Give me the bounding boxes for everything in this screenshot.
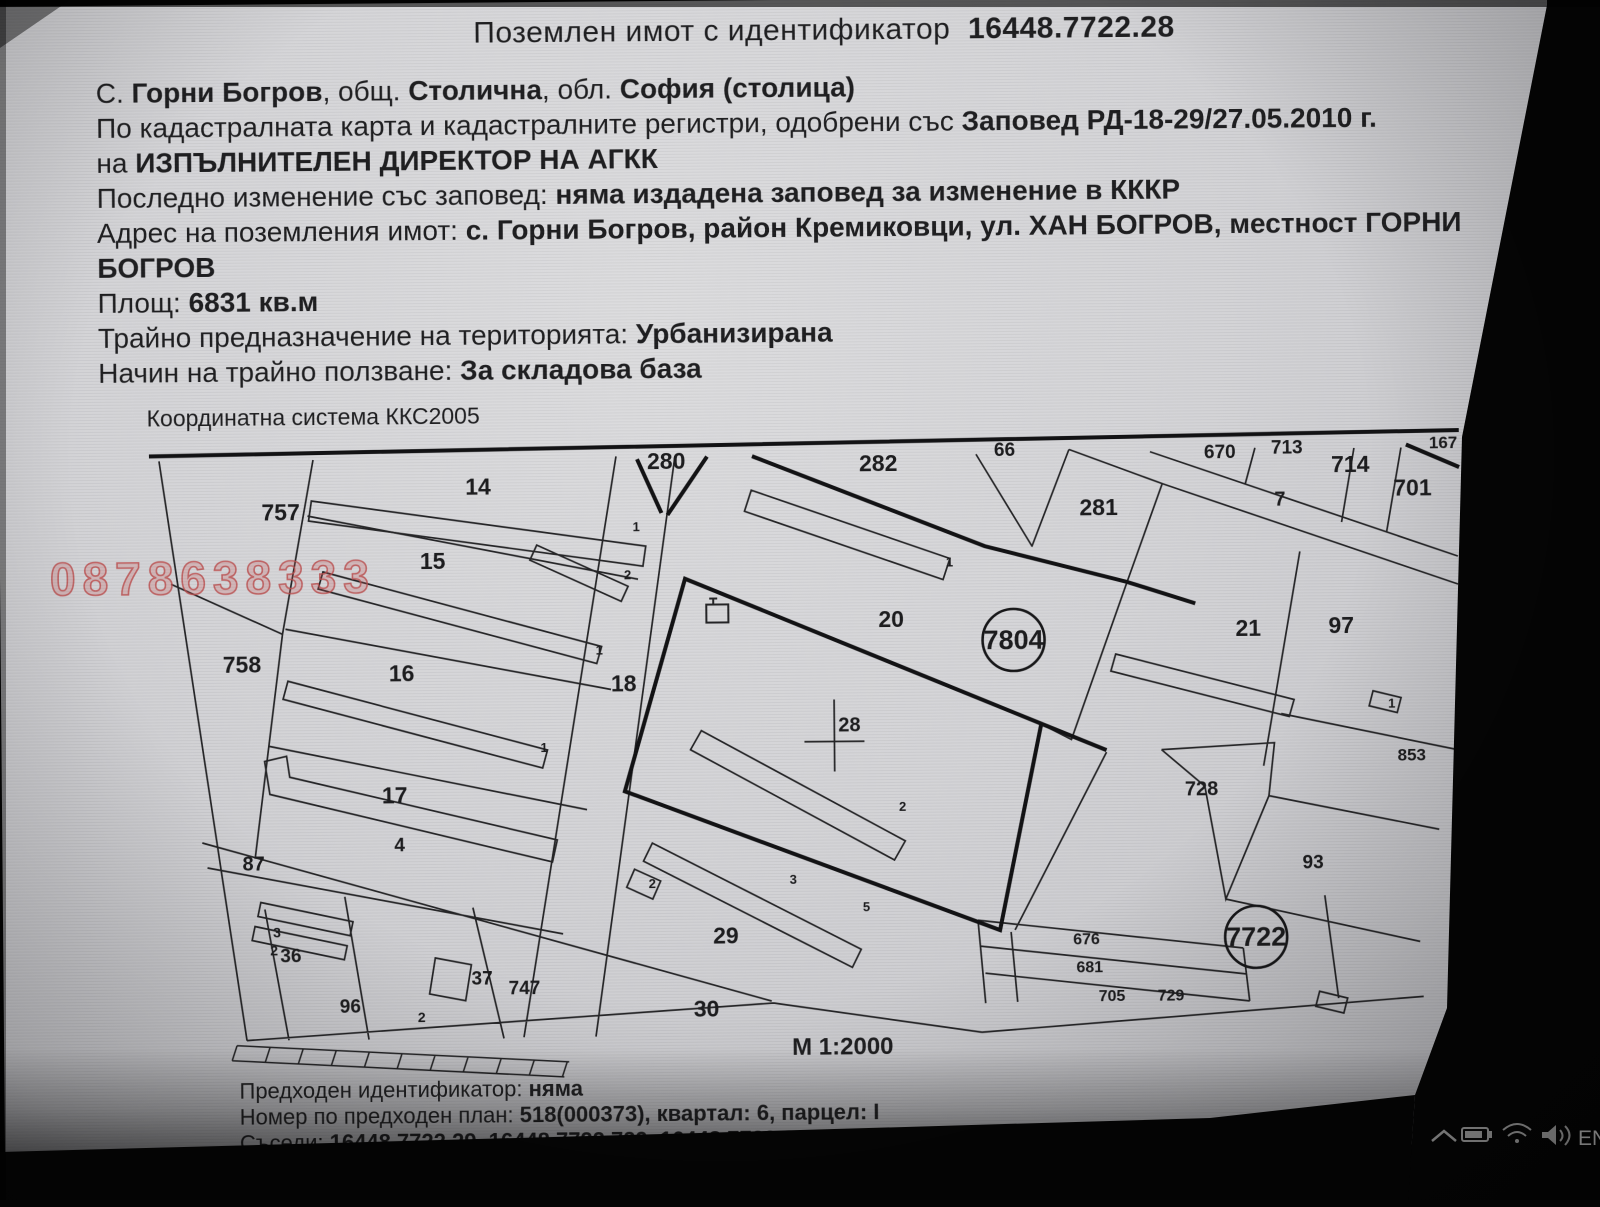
system-tray: EN bbox=[0, 0, 1600, 1200]
battery-icon[interactable] bbox=[1462, 1128, 1492, 1141]
photo-of-laptop-screen: { "title": { "prefix": "Поземлен имот с … bbox=[0, 0, 1600, 1200]
chevron-up-icon[interactable] bbox=[1432, 1131, 1456, 1141]
language-indicator[interactable]: EN bbox=[1578, 1127, 1600, 1150]
wifi-icon[interactable] bbox=[1503, 1124, 1531, 1143]
speaker-icon[interactable] bbox=[1542, 1125, 1570, 1145]
